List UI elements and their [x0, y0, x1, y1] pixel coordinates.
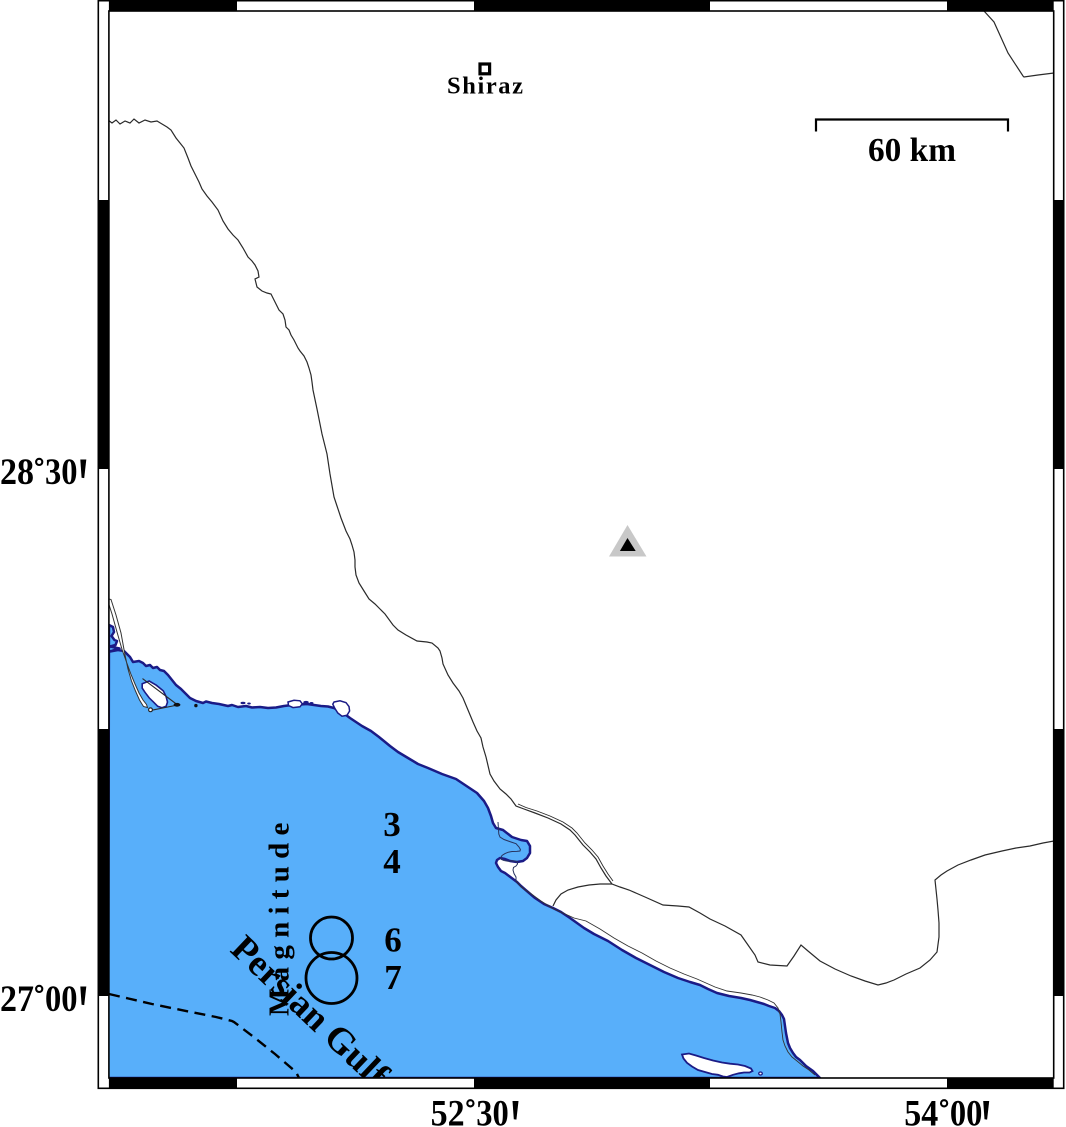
svg-text:30: 30	[45, 451, 78, 492]
svg-text:28: 28	[0, 451, 34, 492]
svg-text:27: 27	[0, 978, 34, 1019]
svg-text:Shiraz: Shiraz	[447, 73, 523, 100]
svg-text:7: 7	[384, 958, 402, 997]
svg-text:3: 3	[383, 805, 401, 844]
svg-text:00: 00	[950, 1093, 983, 1127]
svg-text:52: 52	[431, 1093, 465, 1127]
svg-text:00: 00	[45, 978, 78, 1019]
svg-text:54: 54	[904, 1093, 938, 1127]
svg-text:60 km: 60 km	[868, 132, 956, 169]
svg-text:6: 6	[384, 921, 402, 960]
svg-text:4: 4	[383, 842, 401, 881]
svg-text:30: 30	[476, 1093, 509, 1127]
